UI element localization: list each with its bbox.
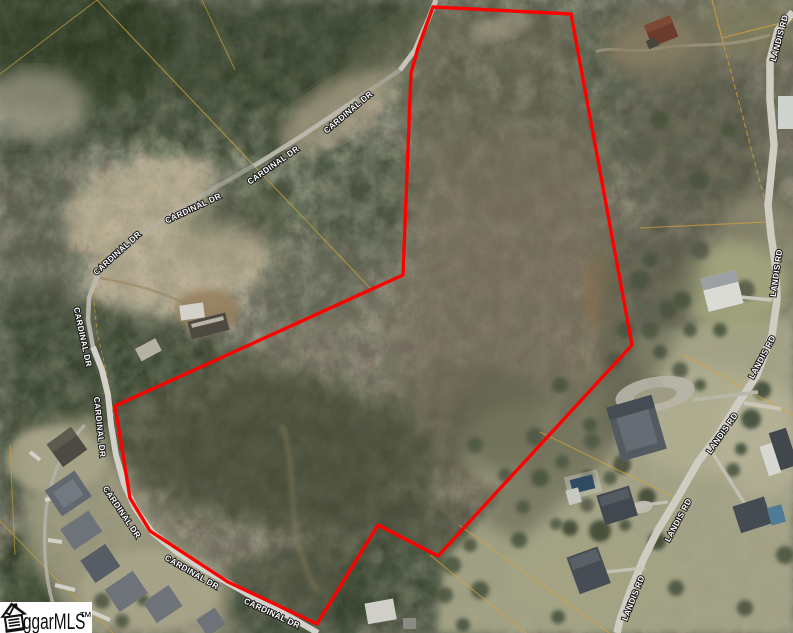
- svg-text:™: ™: [79, 609, 92, 624]
- svg-text:ggarMLS: ggarMLS: [23, 610, 85, 633]
